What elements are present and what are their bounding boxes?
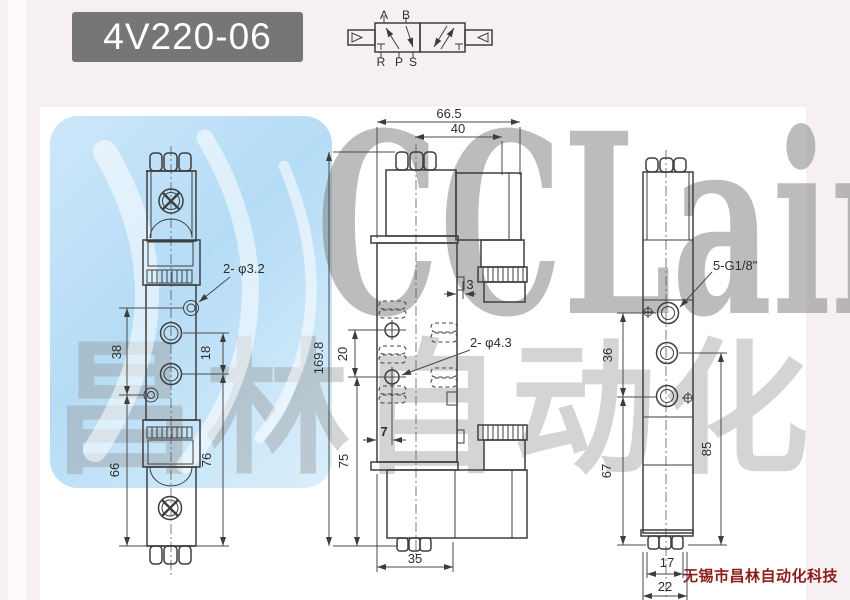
- dim-75-label: 75: [336, 454, 351, 468]
- symbol-port-a: A: [380, 8, 388, 22]
- dim-66-label: 66: [107, 463, 122, 477]
- end-port-bottom: [657, 386, 678, 407]
- dim-40-label: 40: [451, 121, 465, 136]
- front-view: 66.5 40 3 169.8 20 75 7 35 2- φ4.3: [311, 106, 527, 572]
- side-holes-label: 2- φ3.2: [223, 261, 265, 276]
- pneumatic-symbol: A B R P S: [348, 8, 492, 69]
- dim-3-label: 3: [466, 277, 473, 292]
- model-title-box: 4V220-06: [72, 12, 303, 62]
- technical-drawing: A B R P S: [0, 0, 850, 600]
- model-title: 4V220-06: [103, 16, 271, 58]
- end-ports-label: 5-G1/8": [713, 258, 758, 273]
- dim-36-label: 36: [600, 348, 615, 362]
- dim-38-label: 38: [109, 345, 124, 359]
- dim-66-5-label: 66.5: [436, 106, 461, 121]
- dim-17-label: 17: [660, 555, 674, 570]
- solenoid-actuator-left-icon: [348, 30, 375, 45]
- phillips-screw-bottom-icon: [159, 497, 182, 520]
- dim-18-label: 18: [198, 346, 213, 360]
- symbol-port-s: S: [409, 55, 417, 69]
- solenoid-actuator-right-icon: [465, 30, 492, 45]
- dim-7-label: 7: [380, 424, 387, 439]
- side-port-hole-2: [161, 364, 182, 385]
- end-port-middle: [657, 343, 678, 364]
- dim-20-label: 20: [335, 347, 350, 361]
- hidden-port-cavities: [379, 301, 457, 403]
- catalog-page: CCLair 昌林自动化 4V220-06 无锡市昌林自动化科技: [0, 0, 850, 600]
- end-pilot-hole-left: [642, 306, 654, 318]
- front-holes-label: 2- φ4.3: [470, 335, 512, 350]
- symbol-port-b: B: [402, 8, 410, 22]
- dim-67-label: 67: [599, 464, 614, 478]
- end-view: 36 67 85 17 22 5-G1/8": [599, 150, 758, 600]
- symbol-port-r: R: [377, 55, 386, 69]
- phillips-screw-icon: [159, 189, 183, 213]
- front-view-dimensions: 66.5 40 3 169.8 20 75 7 35 2- φ4.3: [311, 106, 520, 572]
- dim-35-label: 35: [408, 551, 422, 566]
- dim-22-label: 22: [658, 579, 672, 594]
- symbol-port-p: P: [395, 55, 403, 69]
- end-pilot-hole-right: [682, 392, 694, 404]
- company-name-text: 无锡市昌林自动化科技: [683, 565, 838, 586]
- dim-169-8-label: 169.8: [311, 342, 326, 375]
- dim-85-label: 85: [699, 442, 714, 456]
- side-rib-band-bottom: [147, 427, 192, 438]
- dim-76-label: 76: [199, 453, 214, 467]
- end-port-top: [658, 303, 679, 324]
